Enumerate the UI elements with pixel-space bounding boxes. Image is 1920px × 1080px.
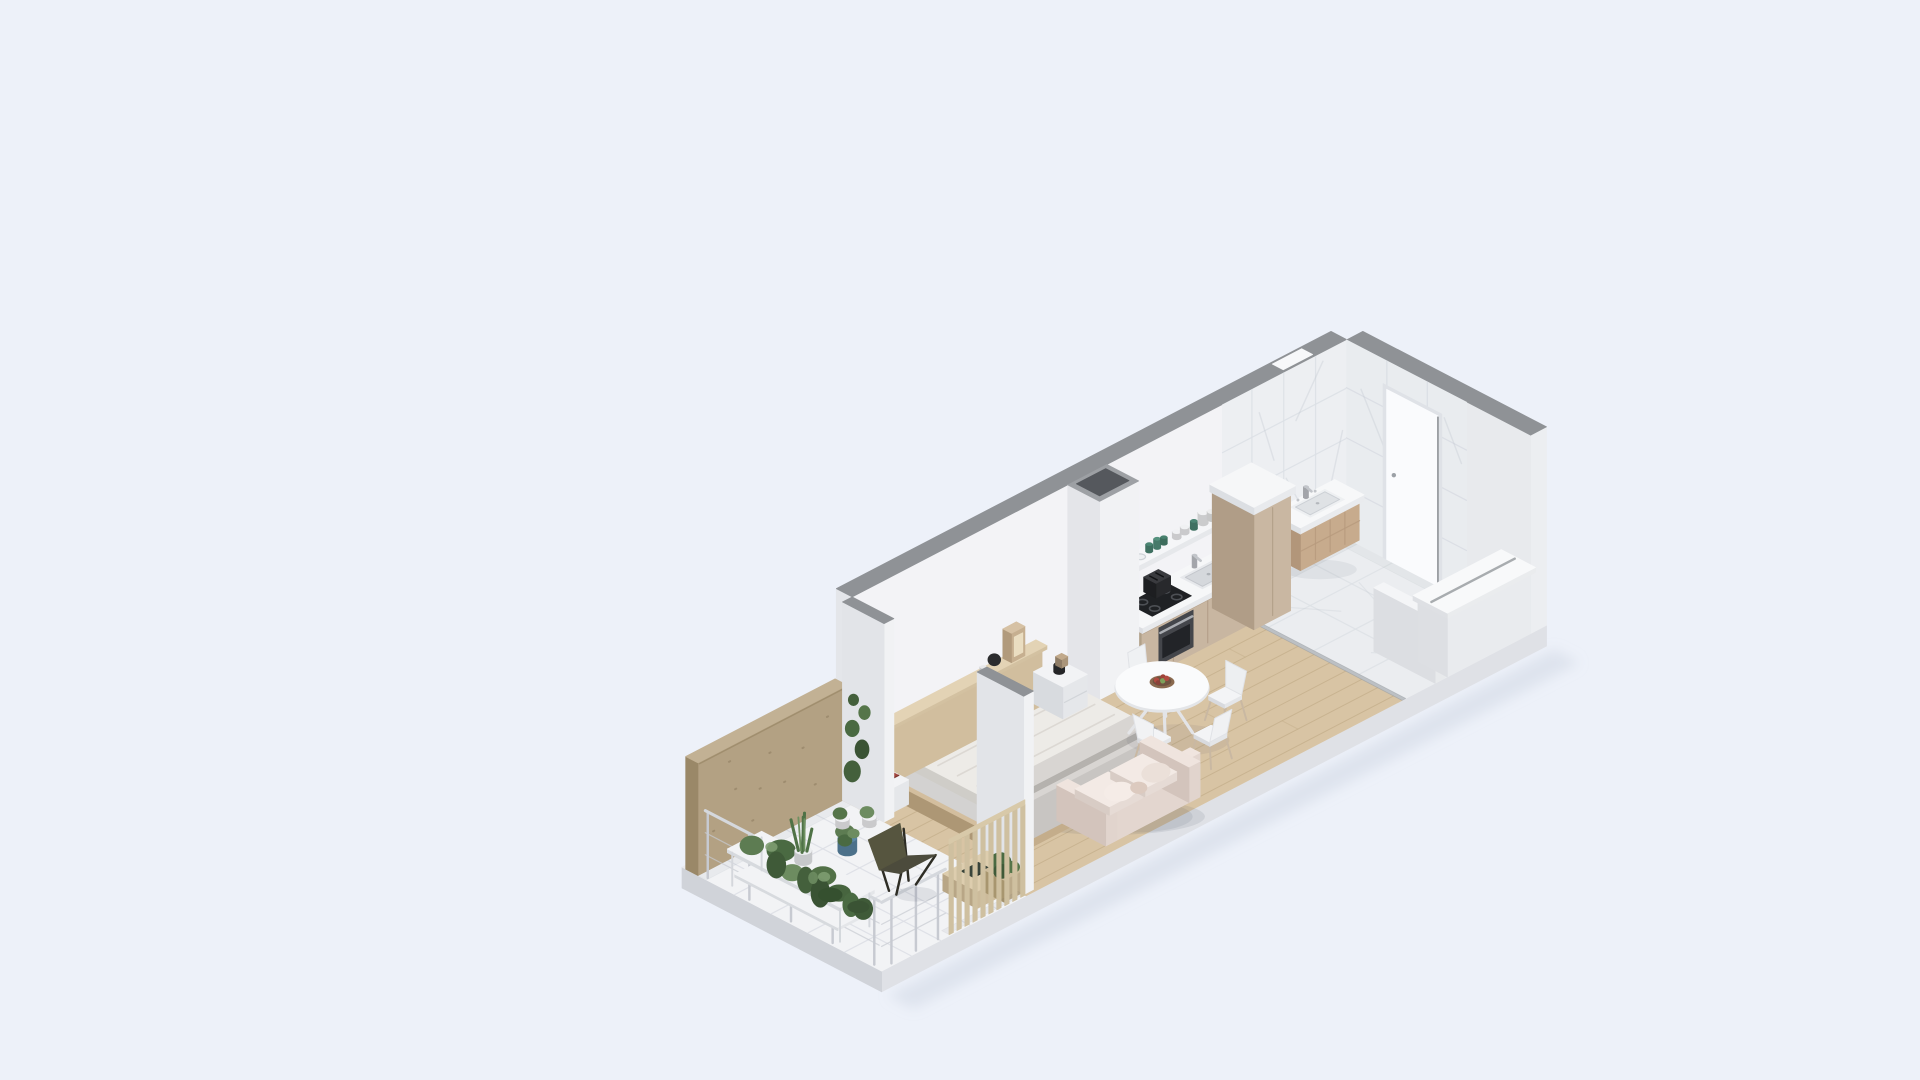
sink-drain <box>1207 573 1211 575</box>
slat-screen <box>1013 809 1017 902</box>
slat-screen <box>973 829 977 922</box>
plywood-speckles <box>802 747 803 748</box>
plywood-speckles <box>752 820 753 821</box>
plant-light-3 <box>808 872 818 884</box>
plant-spill-2 <box>847 901 869 913</box>
slat-screen <box>989 821 993 914</box>
vanity-knob-2 <box>1314 490 1317 493</box>
plywood-speckles <box>815 784 816 785</box>
snake-plant-leaves <box>802 831 803 852</box>
apple-4 <box>1164 676 1169 681</box>
vine-4 <box>858 705 870 720</box>
hanging-plant-1 <box>767 852 787 879</box>
vanity-knob-1 <box>1296 499 1299 502</box>
slat-screen <box>949 842 953 935</box>
plywood-speckles <box>784 782 785 783</box>
slat-screen <box>957 838 961 931</box>
lamp-glow <box>1014 633 1023 657</box>
vine-3 <box>845 720 860 737</box>
plywood-speckles <box>713 831 714 832</box>
vine-5 <box>848 694 859 706</box>
apple-5 <box>1156 680 1161 685</box>
plywood-speckles <box>760 788 761 789</box>
lounge-chair-shadow <box>895 887 937 902</box>
white-pot-2-plant <box>860 806 875 818</box>
vine-2 <box>855 740 870 760</box>
plywood-speckles <box>729 761 730 762</box>
slat-screen <box>1005 813 1009 906</box>
apartment-floor-plan-render <box>0 0 1920 1080</box>
wood-lamp <box>1003 629 1012 663</box>
entry-door-leaf <box>1387 389 1438 586</box>
slat-screen <box>1021 805 1025 898</box>
slat-screen <box>981 825 985 918</box>
vanity-drain <box>1316 502 1320 504</box>
white-cup-1 <box>1172 529 1181 534</box>
plant-spill-1 <box>818 888 842 903</box>
sofa-arm-right <box>1189 761 1200 802</box>
plant-light-2 <box>818 872 830 882</box>
blue-pot-plant-3 <box>847 829 859 839</box>
green-glass-2 <box>1154 537 1161 541</box>
ne-wall <box>1531 427 1547 634</box>
black-vase <box>988 653 1001 666</box>
plant-light-1 <box>765 842 777 852</box>
green-glass-1 <box>1146 542 1153 546</box>
white-cup-2 <box>1180 525 1189 530</box>
plywood-speckles <box>735 789 736 790</box>
plywood-privacy-panel <box>686 756 698 875</box>
plant-1 <box>740 836 764 856</box>
green-glass-3 <box>1160 535 1167 539</box>
plywood-speckles <box>827 716 828 717</box>
floor-plan-stage <box>0 0 1920 1080</box>
plywood-speckles <box>769 752 770 753</box>
sofa-pillow-3 <box>1130 782 1147 794</box>
slat-screen <box>965 834 969 927</box>
divider-wall <box>884 619 894 822</box>
vine-1 <box>844 760 861 782</box>
white-pot-1-plant <box>833 807 848 819</box>
slat-screen <box>997 817 1001 910</box>
entry-door-handle <box>1392 473 1396 477</box>
green-glass-4 <box>1190 519 1197 523</box>
chair-front-legs <box>1210 745 1211 769</box>
candle-1 <box>1198 510 1208 515</box>
